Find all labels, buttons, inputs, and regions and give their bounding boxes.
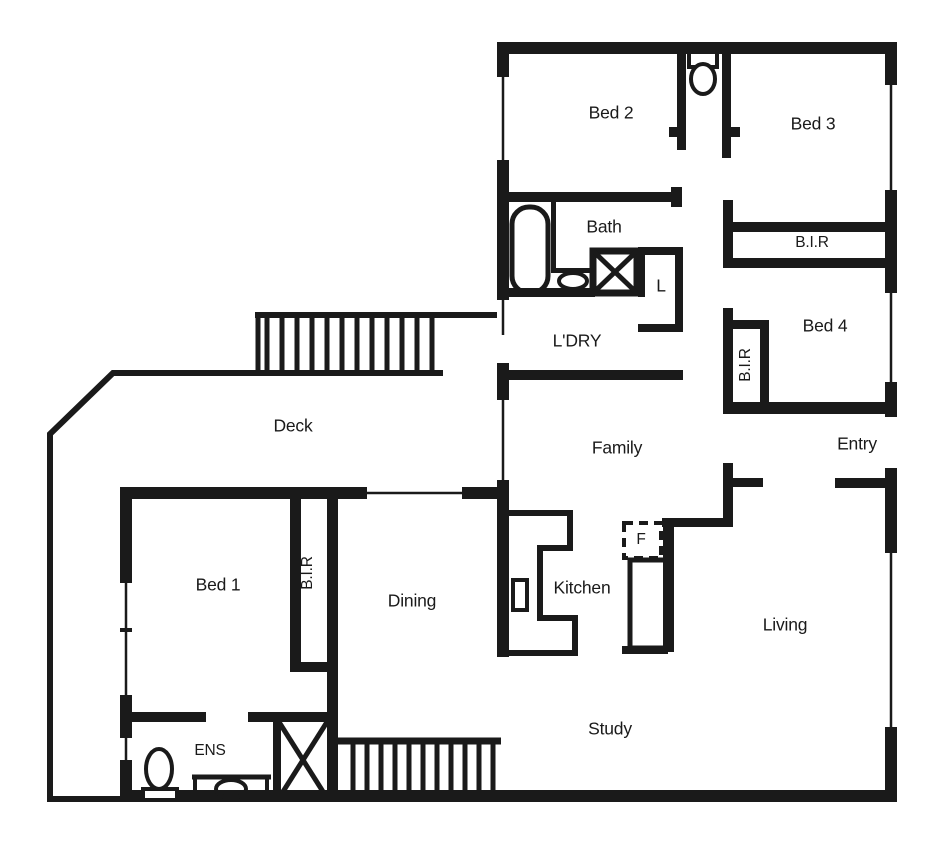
room-label-ldry: L'DRY xyxy=(553,331,602,352)
room-label-deck: Deck xyxy=(273,416,312,437)
room-label-bath: Bath xyxy=(586,217,621,238)
room-label-ens: ENS xyxy=(194,742,225,760)
room-label-bed4: Bed 4 xyxy=(803,316,848,337)
ens-toilet-icon xyxy=(143,749,177,800)
bath-shower-icon xyxy=(593,251,637,293)
floor-plan: Bed 2 Bed 3 Bath B.I.R L Bed 4 B.I.R L'D… xyxy=(0,0,949,853)
room-label-study: Study xyxy=(588,719,632,740)
room-label-bir-bed4: B.I.R xyxy=(737,348,755,381)
bathtub-icon xyxy=(512,207,548,293)
room-label-bed3: Bed 3 xyxy=(791,114,836,135)
room-label-entry: Entry xyxy=(837,434,877,455)
room-label-kitchen: Kitchen xyxy=(554,578,611,599)
room-label-family: Family xyxy=(592,438,642,459)
room-label-bed1: Bed 1 xyxy=(196,575,241,596)
label-fridge: F xyxy=(636,531,645,549)
bath-basin-icon xyxy=(559,273,587,289)
room-label-living: Living xyxy=(763,615,808,636)
island-bench xyxy=(622,560,668,654)
deck-stairs-icon xyxy=(255,313,497,372)
internal-stairs-icon xyxy=(328,741,501,790)
deck-outline xyxy=(50,373,443,799)
ens-shower-icon xyxy=(279,722,327,798)
room-label-linen: L xyxy=(656,276,666,297)
room-label-bir-bed3: B.I.R xyxy=(795,234,828,252)
wc-toilet-icon xyxy=(689,51,717,94)
room-label-bed2: Bed 2 xyxy=(589,103,634,124)
room-label-dining: Dining xyxy=(388,591,436,612)
kitchen-sink-icon xyxy=(513,580,527,610)
room-label-bir-bed1: B.I.R xyxy=(299,556,317,589)
